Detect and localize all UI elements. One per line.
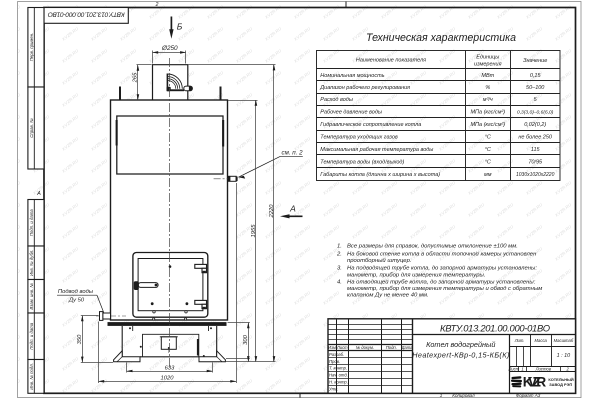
svg-text:манометр, прибор для измерения: манометр, прибор для измерения температу…	[347, 272, 485, 278]
svg-text:На боковой стенке котла в обла: На боковой стенке котла в области топочн…	[347, 250, 537, 257]
svg-text:м³/ч: м³/ч	[483, 97, 493, 103]
svg-text:Дата: Дата	[400, 345, 413, 350]
svg-text:Котел водогрейный: Котел водогрейный	[426, 340, 495, 349]
svg-text:0,15: 0,15	[530, 73, 542, 79]
svg-text:1955: 1955	[251, 224, 257, 238]
svg-text:клапаном Ду не менее 40 мм.: клапаном Ду не менее 40 мм.	[347, 293, 429, 299]
svg-text:°С: °С	[485, 147, 491, 153]
svg-text:Heatexpert-КВр-0,15-КБ(К): Heatexpert-КВр-0,15-КБ(К)	[412, 350, 509, 359]
svg-text:Подп. и дата: Подп. и дата	[29, 322, 34, 350]
svg-text:0,3(3,0)–0,6(6,0): 0,3(3,0)–0,6(6,0)	[517, 110, 554, 116]
svg-text:Формат А3: Формат А3	[516, 393, 541, 398]
svg-text:265: 265	[133, 72, 139, 83]
svg-text:Максимальная рабочая температу: Максимальная рабочая температура воды	[320, 147, 433, 153]
svg-text:Взам. инв. №: Взам. инв. №	[29, 283, 34, 310]
svg-text:Листов: Листов	[535, 367, 552, 372]
svg-text:Рабочее давление воды: Рабочее давление воды	[320, 110, 382, 116]
svg-text:Расход воды: Расход воды	[320, 97, 353, 103]
svg-text:Единицы: Единицы	[476, 54, 499, 60]
svg-text:Т. контр.: Т. контр.	[329, 366, 347, 371]
svg-text:633: 633	[165, 365, 175, 371]
svg-text:ЗАВОД РЭП: ЗАВОД РЭП	[549, 382, 572, 387]
svg-text:Ø250: Ø250	[161, 45, 178, 52]
svg-text:Значение: Значение	[523, 58, 547, 64]
svg-text:МПа (кгс/см²): МПа (кгс/см²)	[470, 110, 505, 116]
svg-text:1 : 10: 1 : 10	[557, 353, 571, 359]
svg-text:Нач. отд.: Нач. отд.	[329, 373, 348, 378]
svg-text:измерения: измерения	[474, 61, 502, 67]
svg-text:350: 350	[77, 334, 83, 344]
svg-text:Подвод воды: Подвод воды	[58, 289, 94, 295]
svg-text:1030х1020х2220: 1030х1020х2220	[516, 172, 555, 178]
svg-text:Масштаб: Масштаб	[554, 338, 574, 343]
svg-text:70/95: 70/95	[528, 160, 543, 166]
svg-text:Лист: Лист	[507, 367, 519, 372]
svg-text:1.: 1.	[337, 244, 342, 250]
svg-text:Диапазон рабочего регулировани: Диапазон рабочего регулирования	[319, 85, 410, 91]
svg-text:МВт: МВт	[481, 73, 494, 79]
svg-text:Б: Б	[177, 22, 183, 32]
svg-text:2: 2	[155, 2, 159, 8]
svg-text:Копировал: Копировал	[452, 393, 475, 398]
svg-text:Габариты котла (длинна х ширин: Габариты котла (длинна х ширина х высота…	[320, 172, 440, 178]
svg-text:Утв.: Утв.	[329, 386, 339, 391]
svg-text:Подп. и дата: Подп. и дата	[29, 209, 34, 237]
svg-text:Техническая характеристика: Техническая характеристика	[366, 32, 516, 44]
svg-text:Наименование показателя: Наименование показателя	[356, 58, 426, 64]
svg-text:°С: °С	[485, 135, 491, 141]
svg-text:мм: мм	[484, 172, 492, 178]
svg-text:Температура воды (вход/выход): Температура воды (вход/выход)	[320, 160, 404, 166]
svg-text:Подп.: Подп.	[386, 345, 397, 350]
svg-text:Лит.: Лит.	[514, 338, 525, 343]
svg-text:50–100: 50–100	[526, 85, 545, 91]
svg-text:300: 300	[243, 334, 249, 344]
svg-text:КВТУ.013.201.00.000-01ВО: КВТУ.013.201.00.000-01ВО	[440, 322, 551, 333]
svg-text:115: 115	[531, 147, 541, 153]
svg-text:%: %	[485, 85, 490, 91]
svg-text:4.: 4.	[337, 279, 342, 285]
svg-text:0,02(0,2): 0,02(0,2)	[524, 122, 546, 128]
svg-text:Изм: Изм	[328, 345, 336, 350]
svg-text:№ докум.: № докум.	[356, 345, 374, 350]
svg-text:Номинальная мощность: Номинальная мощность	[320, 73, 384, 79]
svg-text:А: А	[289, 204, 296, 214]
svg-text:Разраб.: Разраб.	[329, 352, 344, 357]
svg-text:2220: 2220	[269, 204, 275, 219]
svg-text:2.: 2.	[336, 251, 342, 257]
svg-text:Ду 50: Ду 50	[68, 298, 85, 304]
svg-text:На отводящей трубе котла, до з: На отводящей трубе котла, до запорной ар…	[347, 278, 536, 285]
svg-text:KVZR: KVZR	[523, 375, 546, 390]
svg-text:см. п. 2: см. п. 2	[281, 150, 303, 157]
svg-text:не более 250: не более 250	[518, 135, 553, 141]
svg-text:МПа (кгс/см²): МПа (кгс/см²)	[470, 122, 505, 128]
svg-text:На подводящей трубе котла, до: На подводящей трубе котла, до запорной а…	[347, 265, 537, 272]
svg-text:Инв. № дубл.: Инв. № дубл.	[29, 250, 34, 276]
svg-text:1020: 1020	[161, 376, 175, 382]
svg-text:проотборный штуцер.: проотборный штуцер.	[347, 257, 412, 264]
svg-text:Масса: Масса	[535, 338, 548, 343]
svg-text:Перв. примен.: Перв. примен.	[29, 33, 34, 62]
svg-text:А: А	[36, 191, 41, 197]
svg-text:Инв. № подл.: Инв. № подл.	[29, 363, 34, 390]
svg-text:Лист: Лист	[336, 345, 348, 350]
svg-text:Справ. №: Справ. №	[29, 118, 34, 138]
svg-text:КВТУ.013.201.00.000-01ВО: КВТУ.013.201.00.000-01ВО	[48, 11, 125, 18]
svg-text:Гидравлическое сопротивление к: Гидравлическое сопротивление котла	[320, 122, 421, 128]
svg-text:Н. контр.: Н. контр.	[329, 380, 348, 385]
svg-text:°С: °С	[485, 160, 491, 166]
svg-text:Пров.: Пров.	[329, 359, 340, 364]
svg-text:Температура уходящих газов: Температура уходящих газов	[320, 135, 398, 141]
svg-text:3.: 3.	[337, 266, 342, 272]
svg-text:1: 1	[521, 367, 523, 372]
svg-text:Все размеры для справок, допус: Все размеры для справок, допустимые откл…	[347, 244, 518, 250]
svg-text:манометр, прибор для измерения: манометр, прибор для измерения температу…	[347, 286, 542, 292]
